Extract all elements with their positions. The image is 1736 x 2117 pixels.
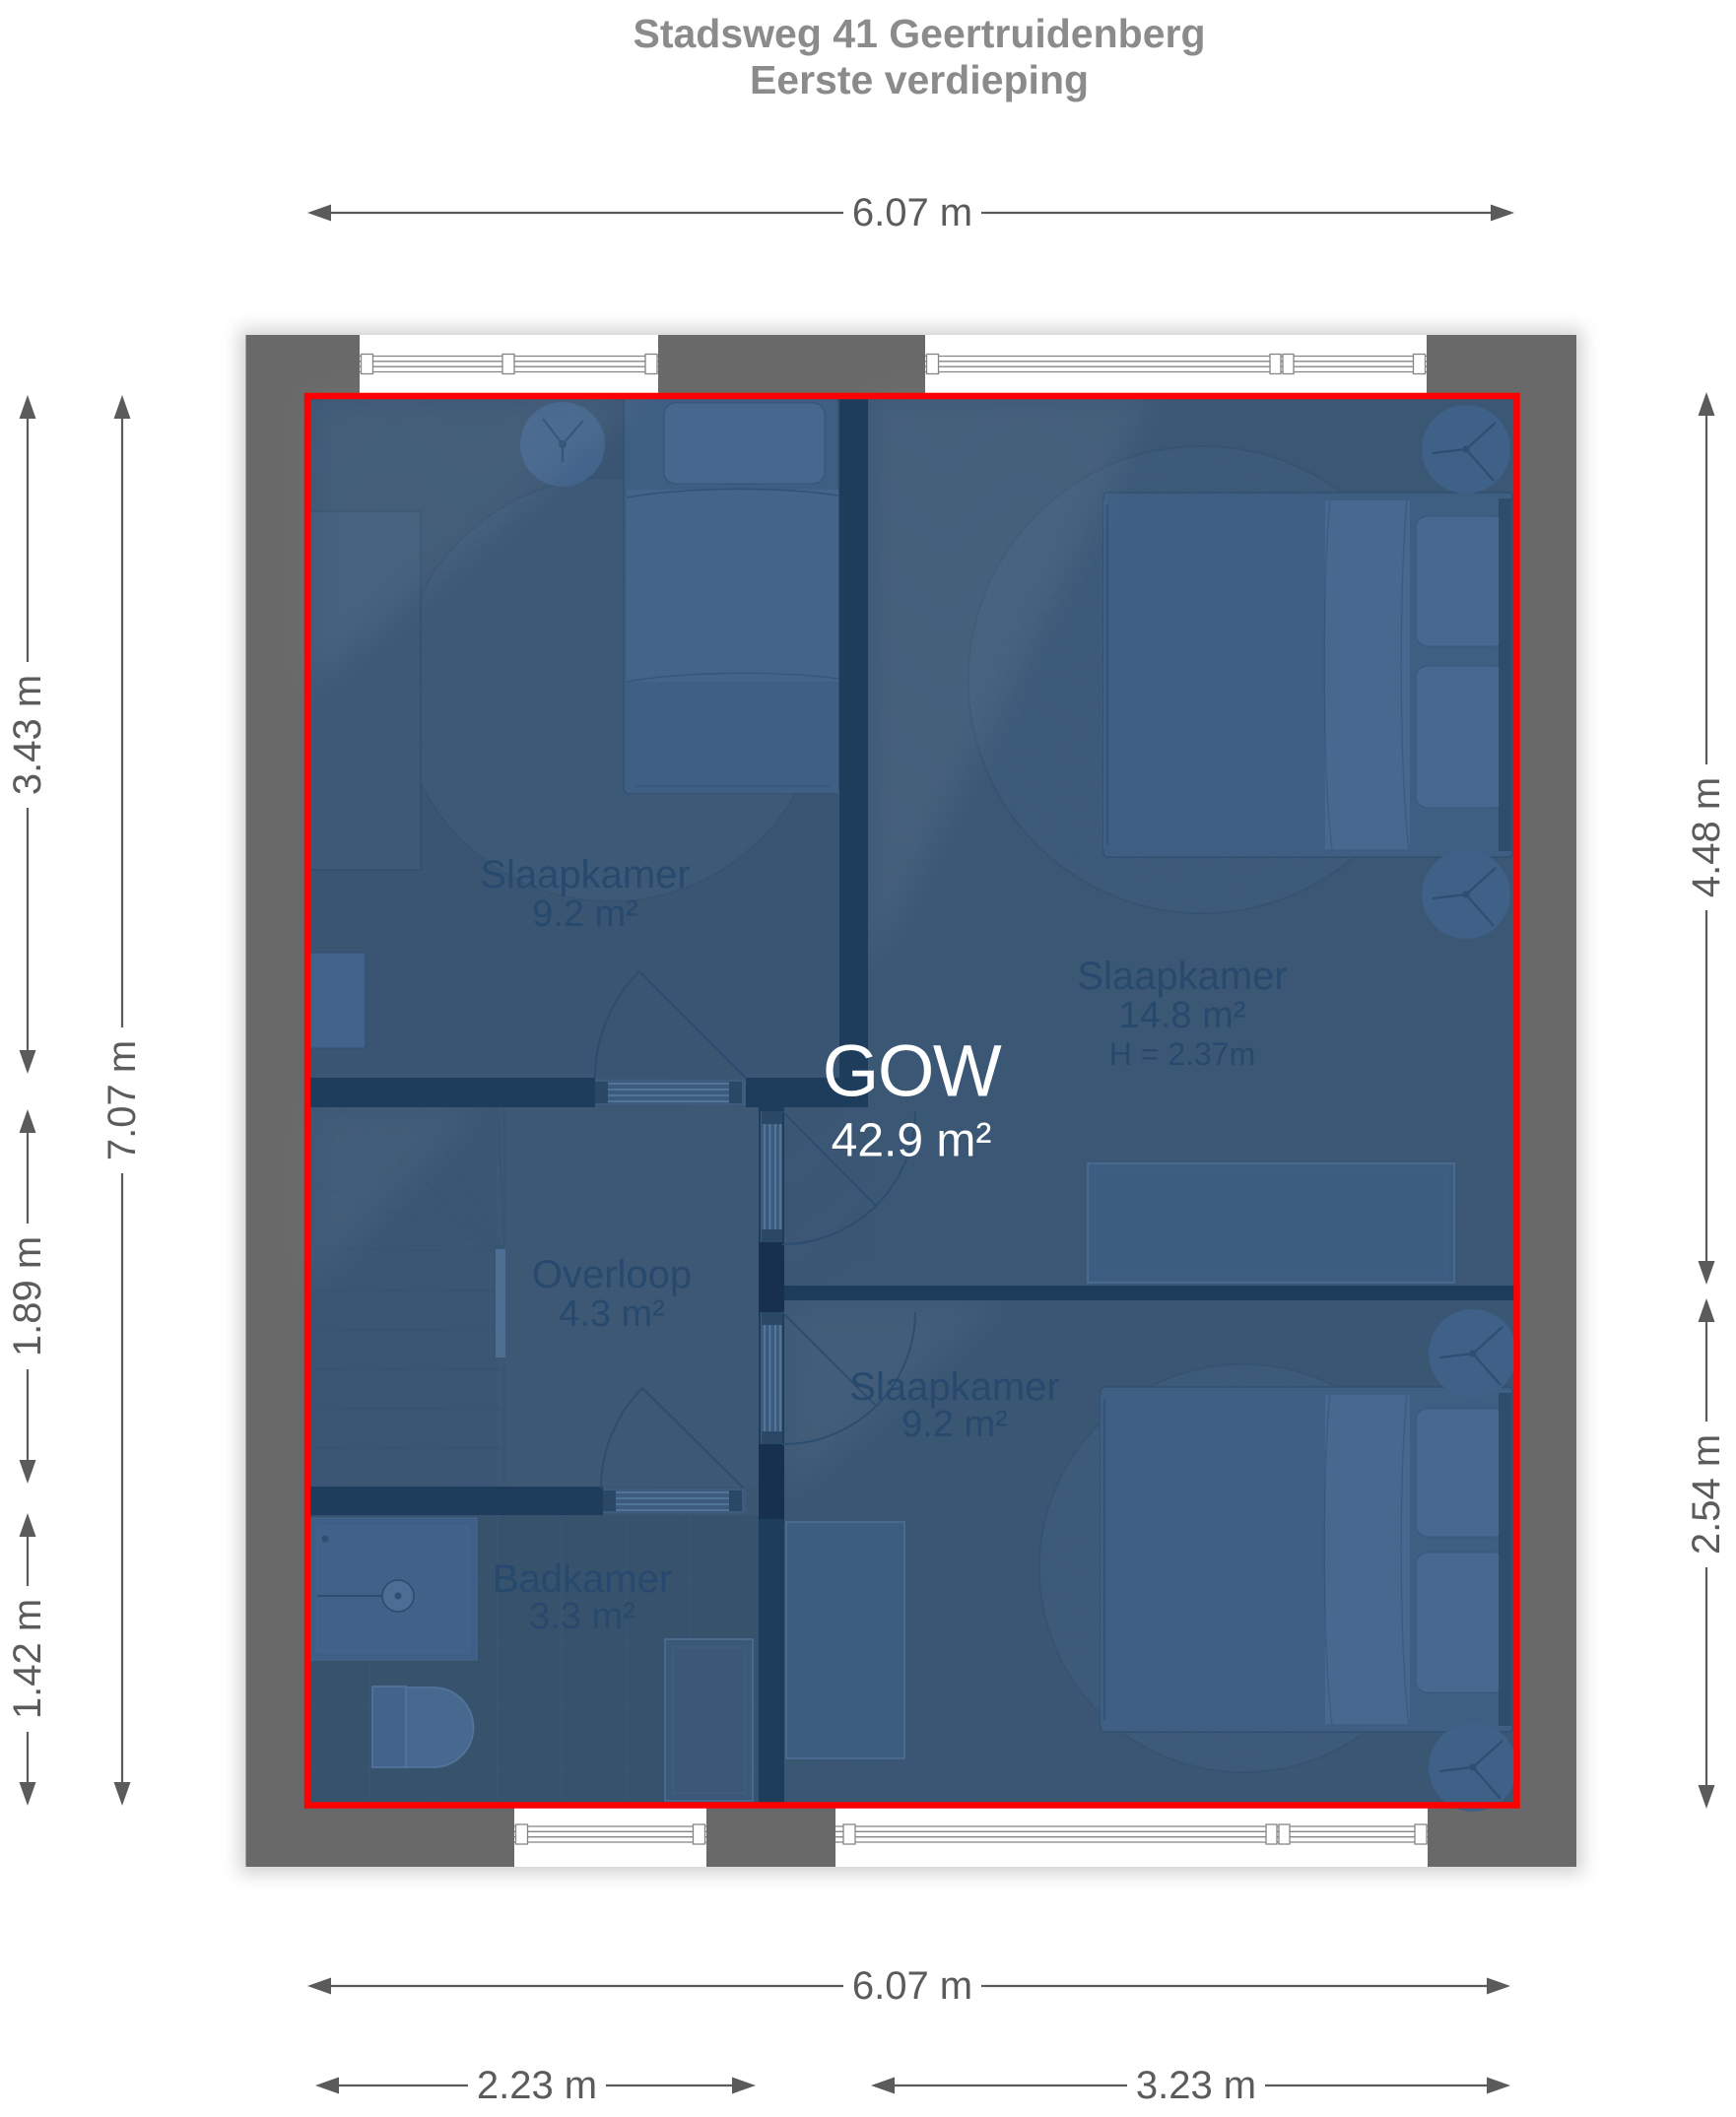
svg-text:Badkamer: Badkamer bbox=[493, 1557, 672, 1601]
svg-text:GOW: GOW bbox=[823, 1030, 1002, 1112]
svg-text:Slaapkamer: Slaapkamer bbox=[1077, 955, 1287, 998]
svg-text:42.9 m²: 42.9 m² bbox=[832, 1115, 992, 1167]
svg-text:6.07 m: 6.07 m bbox=[852, 191, 972, 234]
svg-text:1.89 m: 1.89 m bbox=[6, 1236, 49, 1356]
svg-text:4.3 m²: 4.3 m² bbox=[559, 1293, 665, 1335]
svg-text:7.07 m: 7.07 m bbox=[100, 1040, 144, 1160]
svg-text:3.23 m: 3.23 m bbox=[1136, 2064, 1256, 2107]
svg-text:3.43 m: 3.43 m bbox=[6, 675, 49, 795]
svg-text:Slaapkamer: Slaapkamer bbox=[480, 853, 690, 896]
svg-text:H = 2.37m: H = 2.37m bbox=[1109, 1036, 1256, 1072]
svg-text:Slaapkamer: Slaapkamer bbox=[849, 1365, 1059, 1409]
svg-text:Stadsweg 41 Geertruidenberg: Stadsweg 41 Geertruidenberg bbox=[633, 11, 1205, 56]
svg-text:Overloop: Overloop bbox=[532, 1253, 692, 1296]
svg-text:4.48 m: 4.48 m bbox=[1685, 777, 1728, 897]
svg-text:9.2 m²: 9.2 m² bbox=[901, 1404, 1008, 1445]
svg-text:14.8 m²: 14.8 m² bbox=[1119, 995, 1246, 1036]
svg-text:1.42 m: 1.42 m bbox=[6, 1599, 49, 1719]
svg-text:9.2 m²: 9.2 m² bbox=[532, 893, 638, 935]
svg-text:2.23 m: 2.23 m bbox=[477, 2064, 597, 2107]
svg-text:6.07 m: 6.07 m bbox=[852, 1964, 972, 2008]
svg-text:Eerste verdieping: Eerste verdieping bbox=[750, 57, 1089, 102]
svg-text:3.3 m²: 3.3 m² bbox=[529, 1596, 635, 1637]
svg-text:2.54 m: 2.54 m bbox=[1685, 1434, 1728, 1555]
